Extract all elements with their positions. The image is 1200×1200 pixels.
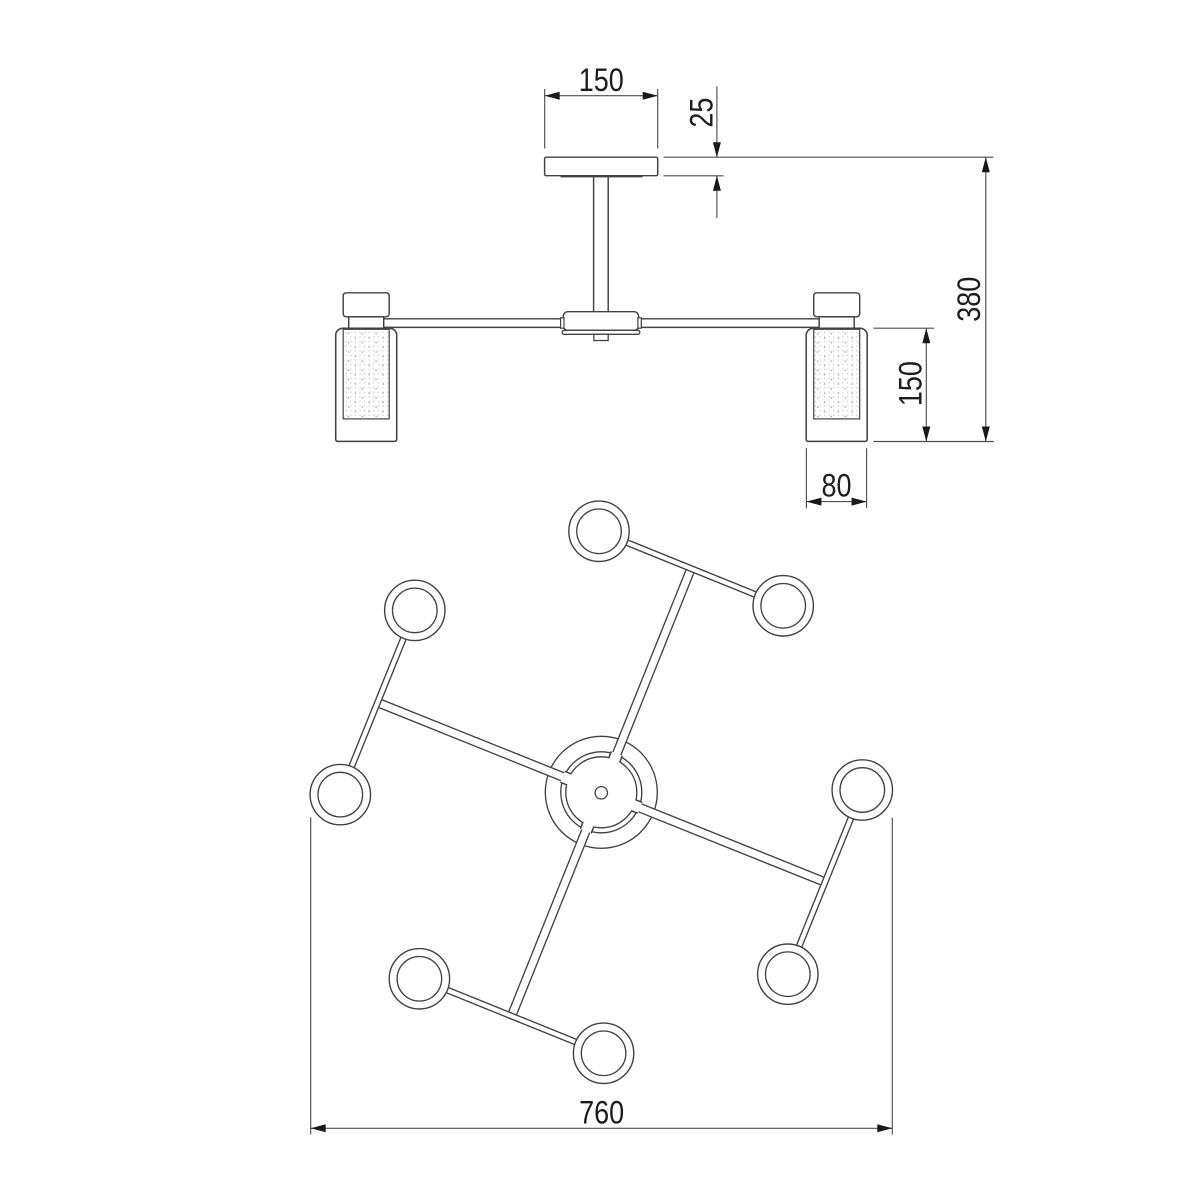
svg-text:25: 25 xyxy=(683,98,719,128)
svg-text:150: 150 xyxy=(893,361,929,406)
svg-text:150: 150 xyxy=(579,62,624,98)
svg-text:80: 80 xyxy=(822,468,852,504)
svg-text:380: 380 xyxy=(951,277,987,322)
svg-text:760: 760 xyxy=(579,1094,624,1130)
